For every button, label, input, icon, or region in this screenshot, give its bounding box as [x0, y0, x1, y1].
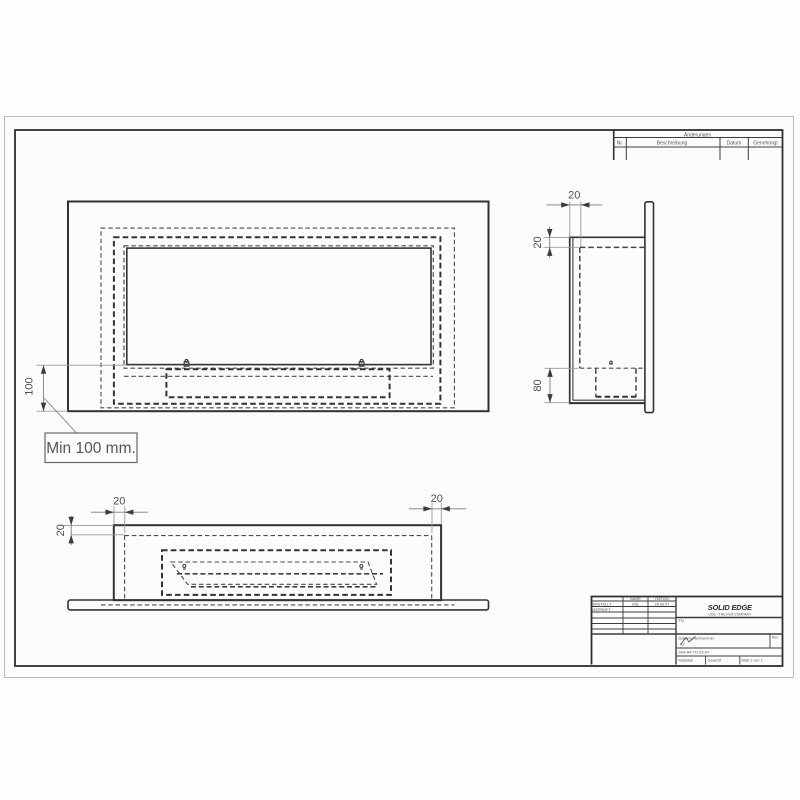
svg-text:24.08.07: 24.08.07 [655, 602, 670, 606]
svg-text:Blatt 1 von 1: Blatt 1 von 1 [742, 659, 763, 663]
svg-text:Datum: Datum [727, 141, 742, 147]
svg-text:HSL: HSL [632, 602, 639, 606]
svg-text:Beschreibung: Beschreibung [657, 141, 688, 147]
svg-text:20: 20 [431, 493, 443, 505]
svg-text:NAME: NAME [630, 597, 641, 601]
svg-text:SOLID EDGE: SOLID EDGE [708, 603, 753, 612]
svg-text:20: 20 [532, 236, 544, 248]
svg-text:Änderungen: Änderungen [684, 132, 711, 139]
svg-text:Genehmigt: Genehmigt [753, 141, 778, 147]
svg-text:DATUM: DATUM [655, 597, 668, 601]
svg-text:ERSTELLT: ERSTELLT [593, 602, 613, 606]
svg-text:100: 100 [24, 377, 36, 395]
svg-text:UGS - THE PLM COMPANY: UGS - THE PLM COMPANY [708, 613, 752, 617]
svg-text:TN: TN [679, 619, 684, 623]
svg-text:Rev: Rev [772, 636, 778, 640]
svg-text:GEPRÜFT: GEPRÜFT [593, 608, 612, 612]
svg-text:Min 100 mm.: Min 100 mm. [46, 440, 136, 457]
svg-text:Gewicht: Gewicht [708, 659, 723, 663]
svg-text:Maßstab: Maßstab [679, 659, 694, 663]
svg-text:20: 20 [113, 496, 125, 508]
svg-text:Nr.: Nr. [617, 141, 623, 147]
svg-text:80: 80 [532, 379, 544, 391]
svg-text:20: 20 [55, 524, 67, 536]
svg-text:20: 20 [568, 190, 580, 202]
svg-text:DIN-A4 TH 02.97: DIN-A4 TH 02.97 [679, 650, 710, 655]
